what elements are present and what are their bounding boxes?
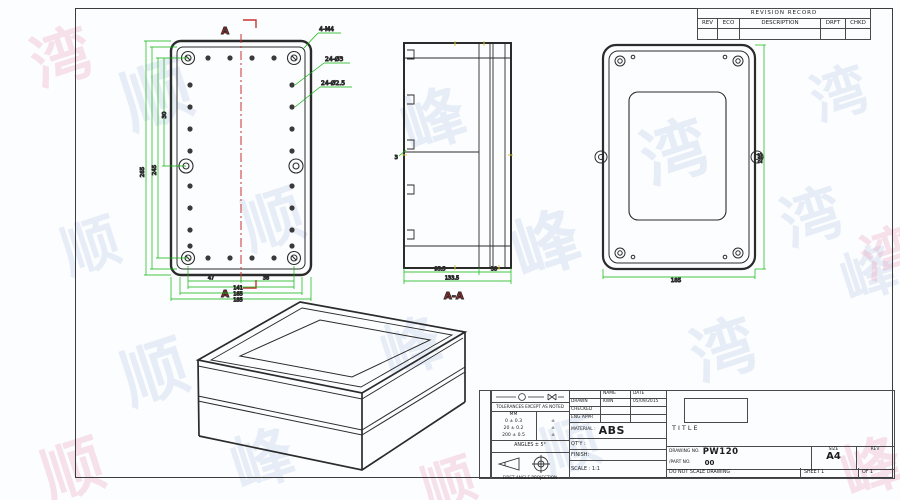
- tolerance-mark: ±: [537, 426, 569, 433]
- section-line-a: [241, 20, 256, 288]
- material-row: MATERIAL : ABS: [569, 423, 666, 439]
- front-callout-hole-inner: 24-Ø2.5: [321, 80, 345, 87]
- section-dim-base: 95.5: [434, 267, 445, 273]
- title-label: TITLE: [672, 425, 700, 432]
- drawing-no-label: DRAWING NO.: [669, 450, 700, 454]
- section-marker-bottom: A: [221, 289, 229, 300]
- back-dim-width: 185: [671, 278, 682, 284]
- section-dimensions: [399, 150, 511, 284]
- tolerance-row: 0 ± 0.3: [491, 419, 536, 426]
- section-dim-wall: 3: [395, 155, 399, 161]
- front-view: A A: [140, 20, 352, 304]
- checked-row: CHECKED: [569, 407, 666, 415]
- revision-table: REVISION RECORD REV ECO DESCRIPTION DRFT…: [697, 8, 871, 40]
- back-dimensions: [603, 45, 766, 279]
- front-dim-inner-b: 38: [263, 276, 269, 282]
- tolerance-row: 20 ± 0.2: [491, 426, 536, 433]
- section-marker-top: A: [221, 26, 229, 37]
- qty-row: QT'Y :: [569, 439, 666, 450]
- first-angle-projection-icon: [491, 454, 569, 474]
- eng-appr-label: ENG APPR: [569, 415, 601, 422]
- front-dim-inner-a: 47: [208, 276, 214, 282]
- no-scale-note: DO NOT SCALE DRAWING: [666, 468, 801, 478]
- tolerance-heading: TOLERANCES EXCEPT AS NOTED: [491, 403, 569, 412]
- sheet-info: SHEET 1: [801, 468, 859, 478]
- back-side-tabs: [595, 151, 763, 163]
- revision-col-rev: REV: [698, 19, 718, 28]
- back-dim-height: 265: [758, 152, 764, 163]
- section-outline: [404, 43, 511, 268]
- drawn-date: 05/09/2015: [631, 399, 666, 406]
- section-label: A-A: [444, 291, 464, 302]
- revision-empty-row: [698, 29, 870, 39]
- scale-row: SCALE : 1:1: [569, 461, 666, 478]
- section-view: 3 95.5 38 133.5 A-A: [395, 41, 514, 302]
- size-cell: SIZE A4: [811, 447, 857, 469]
- drawn-label: DRAWN: [569, 399, 601, 406]
- revision-table-header: REV ECO DESCRIPTION DRFT CHKD: [698, 19, 870, 29]
- revision-col-eco: ECO: [718, 19, 740, 28]
- revision-col-drft: DRFT: [821, 19, 846, 28]
- part-no-label: /PART NO.: [669, 461, 691, 465]
- datum-symbols-icon: [494, 392, 566, 402]
- material-label: MATERIAL :: [571, 428, 596, 432]
- revision-table-title: REVISION RECORD: [698, 9, 870, 19]
- drawn-name: KWN: [601, 399, 631, 406]
- drawing-no-value: PW120: [703, 448, 739, 457]
- name-header: NAME: [601, 391, 631, 398]
- section-inner-lines: [404, 43, 511, 268]
- projection-label: FIRST ANGLE PROJECTION: [491, 476, 569, 480]
- front-dimensions: [144, 33, 352, 301]
- drawing-number-cell: DRAWING NO. PW120 /PART NO. 00: [666, 447, 812, 469]
- eng-appr-row: ENG APPR: [569, 415, 666, 423]
- back-inner-line: [609, 51, 749, 263]
- tolerance-mark: ±: [537, 433, 569, 440]
- back-outline: [603, 45, 755, 269]
- part-no-value: 00: [705, 460, 715, 467]
- revision-col-description: DESCRIPTION: [740, 19, 821, 28]
- rev-label: REV: [871, 447, 880, 452]
- logo-box: [684, 398, 748, 423]
- isometric-view: [198, 302, 465, 470]
- datum-symbols: [491, 391, 569, 403]
- title-block: TOLERANCES EXCEPT AS NOTED MM 0 ± 0.3 20…: [490, 390, 895, 479]
- back-corner-screws: [615, 55, 743, 259]
- finish-row: FINISH:: [569, 450, 666, 461]
- tolerance-table: MM 0 ± 0.3 20 ± 0.2 200 ± 0.5 ± ± ±: [491, 412, 569, 441]
- section-dim-overall: 133.5: [445, 276, 459, 282]
- of-info: OF 1: [859, 468, 894, 478]
- size-value: A4: [826, 451, 841, 462]
- rev-cell: REV: [856, 447, 894, 469]
- front-dim-w3: 185: [233, 298, 243, 304]
- drawing-number-area: DRAWING NO. PW120 /PART NO. 00 SIZE A4 R…: [666, 446, 894, 470]
- drawing-sheet: 顺 峰 湾 顺 峰 湾 顺 峰 湾 顺 峰 湾 顺 峰 湾 顺 峰 湾 顺: [0, 0, 900, 500]
- approvals-header-row: NAME DATE: [569, 391, 666, 399]
- tolerance-unit: MM: [491, 412, 536, 419]
- tolerance-mark: ±: [537, 419, 569, 426]
- front-dim-h2: 265: [140, 166, 146, 177]
- checked-label: CHECKED: [569, 407, 601, 414]
- date-header: DATE: [631, 391, 666, 398]
- back-recessed-panel: [629, 92, 726, 220]
- tolerance-row: 200 ± 0.5: [491, 433, 536, 440]
- front-callout-corner: 4-M4: [319, 26, 334, 33]
- front-callout-hole-outer: 24-Ø3: [325, 56, 344, 63]
- bottom-row: DO NOT SCALE DRAWING SHEET 1 OF 1: [666, 468, 894, 478]
- back-view: 265 185: [595, 45, 766, 284]
- revision-col-chkd: CHKD: [846, 19, 870, 28]
- front-dim-h1: 245: [152, 164, 158, 175]
- tolerance-section: TOLERANCES EXCEPT AS NOTED MM 0 ± 0.3 20…: [491, 391, 570, 478]
- section-center-marks: [402, 41, 513, 270]
- section-dim-lid: 38: [491, 267, 497, 273]
- approvals-section: NAME DATE DRAWN KWN 05/09/2015 CHECKED E…: [569, 391, 667, 478]
- angles-tolerance: ANGLES ± 5°: [491, 441, 569, 453]
- projection-section: FIRST ANGLE PROJECTION: [491, 453, 569, 481]
- drawn-row: DRAWN KWN 05/09/2015: [569, 399, 666, 407]
- title-section: TITLE DRAWING NO. PW120 /PART NO. 00 SIZ…: [666, 391, 894, 478]
- section-boss-hooks: [407, 50, 414, 239]
- material-value: ABS: [599, 425, 625, 436]
- front-dim-pitch: 30: [162, 111, 168, 118]
